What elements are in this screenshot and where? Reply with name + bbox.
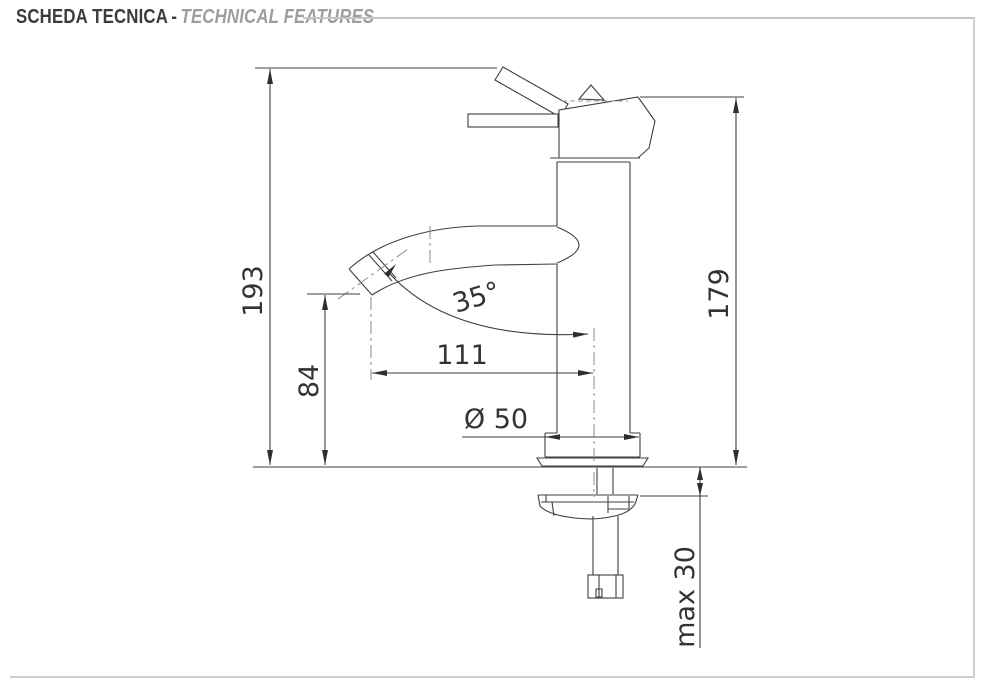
base-plate [537,458,648,466]
technical-drawing: 193 84 179 111 35° Ø 50 max 30 [0,0,1000,700]
cartridge-tip-outline [579,85,604,100]
dim-label-max-30: max 30 [670,546,701,648]
lever-handle [495,67,568,117]
dim-label-35deg: 35° [449,276,504,320]
dim-label-diameter-50: Ø 50 [464,404,528,435]
fixing-set [538,468,638,598]
faucet-body [557,162,630,433]
spout-axis-centerline [338,249,408,299]
supply-shank [597,468,613,494]
dim-label-193: 193 [238,265,269,317]
body-fill [557,162,630,433]
dim-label-179: 179 [704,268,735,320]
fixing-washer [538,495,638,519]
faucet-head [468,67,655,158]
dimension-spout-height: 84 [294,294,360,465]
dimension-max-thickness: max 30 [640,467,708,648]
head-body [559,97,655,158]
lever-pin [468,114,558,127]
dimension-overall-height: 193 [238,68,497,465]
dimension-body-height: 179 [640,97,744,465]
dim-label-111: 111 [436,340,488,371]
fixing-nut [588,575,623,598]
dim-label-84: 84 [294,364,325,398]
threaded-stud [593,516,618,575]
